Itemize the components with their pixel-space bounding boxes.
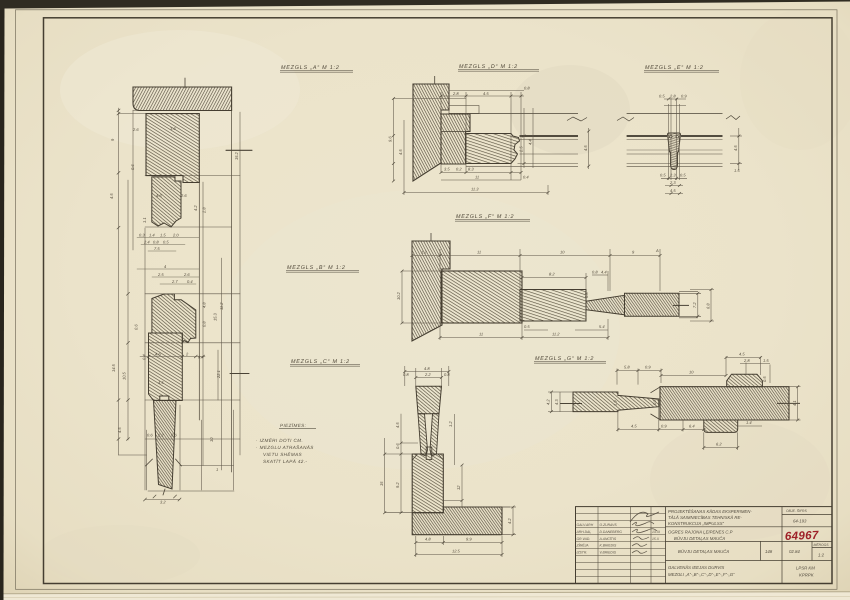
svg-text:15.X: 15.X: [652, 537, 660, 541]
svg-text:0.3: 0.3: [139, 233, 145, 238]
svg-text:KPRPK: KPRPK: [799, 573, 815, 578]
svg-text:8.3: 8.3: [468, 167, 474, 172]
svg-text:1.2: 1.2: [448, 421, 453, 427]
svg-text:MEZGLS „E“ M 1:2: MEZGLS „E“ M 1:2: [645, 65, 704, 71]
svg-text:4.5: 4.5: [158, 380, 164, 385]
svg-text:· MEZGLU ATRAŠANĀS: · MEZGLU ATRAŠANĀS: [256, 444, 314, 450]
svg-text:0.9: 0.9: [645, 365, 651, 370]
svg-text:GALVENĀS IEEJAS DURVIS: GALVENĀS IEEJAS DURVIS: [668, 565, 724, 570]
svg-text:0.8: 0.8: [584, 292, 589, 298]
svg-text:0.8: 0.8: [592, 270, 598, 275]
svg-text:1: 1: [216, 467, 218, 472]
svg-text:4.8: 4.8: [202, 302, 207, 308]
svg-text:4.8: 4.8: [424, 366, 430, 371]
svg-text:MĒROGS: MĒROGS: [814, 543, 830, 547]
svg-text:1.5: 1.5: [160, 233, 166, 238]
svg-text:1.5: 1.5: [763, 358, 769, 363]
svg-text:2.7: 2.7: [171, 279, 178, 284]
svg-text:2.2: 2.2: [424, 372, 431, 377]
svg-text:MEZGLS „G“ M 1:2: MEZGLS „G“ M 1:2: [535, 356, 594, 362]
svg-text:A.ANCĪTIS: A.ANCĪTIS: [599, 537, 617, 541]
svg-text:0.5: 0.5: [524, 324, 530, 329]
svg-text:1.5: 1.5: [734, 168, 740, 173]
svg-text:2.8: 2.8: [202, 207, 207, 214]
svg-text:11: 11: [477, 250, 481, 255]
svg-text:PROJEKTĒŠANAS KĀDAS EKSPERIM: PROJEKTĒŠANAS KĀDAS EKSPERIMEN-: [668, 509, 752, 514]
svg-text:0.6: 0.6: [395, 443, 400, 449]
svg-text:11.2: 11.2: [219, 302, 224, 310]
svg-text:2.4: 2.4: [143, 240, 150, 245]
svg-text:10.2: 10.2: [396, 291, 401, 300]
svg-text:4.5: 4.5: [117, 427, 122, 433]
svg-text:PIEZĪMES:: PIEZĪMES:: [280, 423, 307, 428]
svg-text:64-193: 64-193: [793, 519, 807, 524]
svg-text:0.4: 0.4: [523, 175, 529, 180]
svg-text:6.4: 6.4: [689, 424, 695, 429]
svg-text:7.2: 7.2: [692, 302, 697, 308]
svg-text:0.6: 0.6: [171, 433, 177, 438]
svg-text:3.6: 3.6: [170, 126, 176, 131]
svg-text:O.ZURAVS: O.ZURAVS: [600, 523, 618, 527]
svg-text:MEZGLS „F“ M 1:2: MEZGLS „F“ M 1:2: [456, 214, 514, 220]
svg-text:4.6: 4.6: [156, 193, 162, 198]
svg-text:0.5: 0.5: [659, 94, 665, 99]
svg-text:V.BRIEDIS: V.BRIEDIS: [600, 551, 617, 555]
svg-text:3.5: 3.5: [444, 167, 450, 172]
svg-text:OBJE. ŠIFRS: OBJE. ŠIFRS: [786, 509, 807, 513]
svg-text:0.5: 0.5: [163, 240, 169, 245]
svg-text:12: 12: [456, 485, 461, 490]
svg-text:14.5: 14.5: [111, 363, 116, 372]
svg-text:4.5: 4.5: [398, 149, 403, 155]
svg-text:4.1: 4.1: [792, 400, 797, 406]
svg-text:0.4: 0.4: [198, 355, 204, 360]
svg-text:GR.VAD.: GR.VAD.: [577, 537, 591, 541]
svg-text:6.2: 6.2: [716, 442, 722, 447]
svg-text:2.8: 2.8: [743, 358, 750, 363]
svg-text:MEZGLS „D“ M 1:2: MEZGLS „D“ M 1:2: [459, 64, 518, 70]
svg-text:KONSTRUKCIJA „IMPULSS“: KONSTRUKCIJA „IMPULSS“: [668, 521, 725, 526]
svg-text:2.3: 2.3: [669, 180, 676, 185]
svg-text:9.6: 9.6: [388, 136, 393, 142]
svg-text:1.2: 1.2: [421, 250, 427, 255]
svg-text:0.8: 0.8: [652, 399, 657, 405]
svg-text:22.1: 22.1: [216, 370, 221, 379]
svg-text:BŪVJU DETAĻAS MAUČA: BŪVJU DETAĻAS MAUČA: [678, 549, 729, 554]
svg-text:1.1: 1.1: [142, 217, 147, 223]
svg-text:2.8: 2.8: [669, 94, 676, 99]
svg-text:2.2: 2.2: [157, 433, 164, 438]
svg-text:4.5: 4.5: [109, 193, 114, 199]
svg-text:IZSTR.: IZSTR.: [576, 551, 587, 555]
svg-text:0.5: 0.5: [680, 173, 686, 178]
svg-text:4.5: 4.5: [739, 352, 745, 357]
svg-text:D.DANEBERG: D.DANEBERG: [600, 530, 623, 534]
svg-text:64967: 64967: [785, 529, 819, 543]
svg-text:0.8: 0.8: [444, 372, 450, 377]
svg-text:MEZGLS „C“ M 1:2: MEZGLS „C“ M 1:2: [291, 359, 350, 365]
svg-text:4.5: 4.5: [395, 422, 400, 428]
svg-text:0.8: 0.8: [403, 372, 409, 377]
svg-text:0.6: 0.6: [130, 164, 135, 170]
svg-text:0.2: 0.2: [456, 167, 462, 172]
svg-text:10.5: 10.5: [122, 371, 127, 380]
svg-text:15.2: 15.2: [234, 151, 239, 160]
svg-text:4.6: 4.6: [155, 352, 161, 357]
svg-text:2.5: 2.5: [519, 146, 524, 153]
svg-text:02.84: 02.84: [789, 549, 800, 554]
svg-text:4.8: 4.8: [425, 537, 431, 542]
svg-text:MEZGLI „A“-„B“-„C“-„D“-„E“-„F“: MEZGLI „A“-„B“-„C“-„D“-„E“-„F“-„G“: [668, 572, 735, 577]
svg-text:ARH.DAĻ: ARH.DAĻ: [576, 530, 592, 534]
svg-text:· IZMĒRI DOTI CM.: · IZMĒRI DOTI CM.: [256, 438, 303, 443]
svg-text:0.4: 0.4: [187, 279, 193, 284]
svg-text:11.2: 11.2: [552, 332, 560, 337]
svg-text:2.6: 2.6: [132, 127, 139, 132]
svg-text:4.3: 4.3: [554, 399, 559, 405]
svg-text:0.9: 0.9: [661, 424, 667, 429]
svg-text:7.5: 7.5: [154, 246, 160, 251]
svg-text:A: A: [655, 248, 659, 253]
svg-text:10: 10: [689, 370, 694, 375]
svg-text:8.2: 8.2: [549, 272, 555, 277]
svg-text:SKATĪT LAPĀ 42.-: SKATĪT LAPĀ 42.-: [263, 459, 307, 464]
svg-text:0.8: 0.8: [153, 240, 159, 245]
svg-text:15: 15: [379, 481, 384, 486]
svg-text:4.2: 4.2: [507, 518, 512, 524]
svg-text:6.8: 6.8: [706, 303, 711, 309]
svg-text:9.9: 9.9: [466, 537, 472, 542]
svg-text:K.BRIEDIS: K.BRIEDIS: [600, 544, 618, 548]
svg-text:MEZGLS „B“ M 1:2: MEZGLS „B“ M 1:2: [287, 265, 346, 271]
svg-text:2.5: 2.5: [157, 272, 164, 277]
svg-text:MEZGLS „A“ M 1:2: MEZGLS „A“ M 1:2: [281, 65, 340, 71]
svg-text:ZĪMĒJA: ZĪMĒJA: [576, 544, 590, 548]
svg-text:2.6: 2.6: [180, 193, 187, 198]
svg-text:0.8: 0.8: [202, 321, 207, 327]
svg-text:VIETU SHĒMAS: VIETU SHĒMAS: [263, 452, 303, 457]
svg-text:4.4: 4.4: [601, 270, 607, 275]
svg-text:0.9: 0.9: [681, 94, 687, 99]
svg-text:4.5: 4.5: [583, 145, 588, 151]
svg-text:12.5: 12.5: [452, 549, 461, 554]
svg-text:0.5: 0.5: [660, 173, 666, 178]
svg-text:11.3: 11.3: [471, 187, 479, 192]
svg-text:5.8: 5.8: [624, 365, 630, 370]
svg-text:4.5: 4.5: [483, 91, 489, 96]
svg-text:11: 11: [479, 332, 483, 337]
svg-text:1.4: 1.4: [149, 233, 155, 238]
svg-text:10: 10: [209, 437, 214, 442]
svg-text:2.3: 2.3: [669, 173, 676, 178]
svg-text:1.9: 1.9: [613, 400, 618, 406]
svg-text:4.5: 4.5: [631, 424, 637, 429]
svg-text:11: 11: [475, 175, 479, 180]
svg-text:9.2: 9.2: [395, 482, 400, 488]
svg-text:10: 10: [560, 250, 565, 255]
svg-text:0.5: 0.5: [762, 376, 767, 382]
svg-text:0.4: 0.4: [142, 354, 147, 360]
svg-text:TĀLĀ SAIMNIECĪBAS TEHNISKĀ: TĀLĀ SAIMNIECĪBAS TEHNISKĀ RE-: [668, 515, 742, 520]
svg-text:15.3: 15.3: [213, 312, 218, 321]
svg-text:2.8: 2.8: [452, 91, 459, 96]
svg-text:2.0: 2.0: [172, 233, 179, 238]
svg-text:LPSR KM: LPSR KM: [796, 566, 815, 571]
svg-text:5.4: 5.4: [599, 324, 605, 329]
svg-text:GALV.ARH: GALV.ARH: [577, 523, 594, 527]
svg-text:2.6: 2.6: [183, 272, 190, 277]
svg-text:4.5: 4.5: [670, 188, 676, 193]
svg-text:1:2: 1:2: [818, 553, 825, 558]
svg-text:BŪVJU DETAĻAS MAUČA: BŪVJU DETAĻAS MAUČA: [674, 536, 725, 541]
svg-text:0.6: 0.6: [147, 433, 153, 438]
svg-text:4.5: 4.5: [733, 145, 738, 151]
svg-text:0.8: 0.8: [524, 86, 530, 91]
svg-text:148: 148: [765, 549, 773, 554]
svg-text:4.2: 4.2: [193, 205, 198, 211]
svg-text:3.2: 3.2: [160, 500, 166, 505]
svg-text:0.6: 0.6: [134, 324, 139, 330]
svg-text:13.XI: 13.XI: [652, 530, 660, 534]
svg-text:4.4: 4.4: [528, 139, 533, 145]
svg-text:1.4: 1.4: [746, 420, 752, 425]
svg-text:4.2: 4.2: [546, 399, 551, 405]
svg-text:OGRES RAJONA ĻEIPENES C.P: OGRES RAJONA ĻEIPENES C.P: [668, 530, 733, 535]
